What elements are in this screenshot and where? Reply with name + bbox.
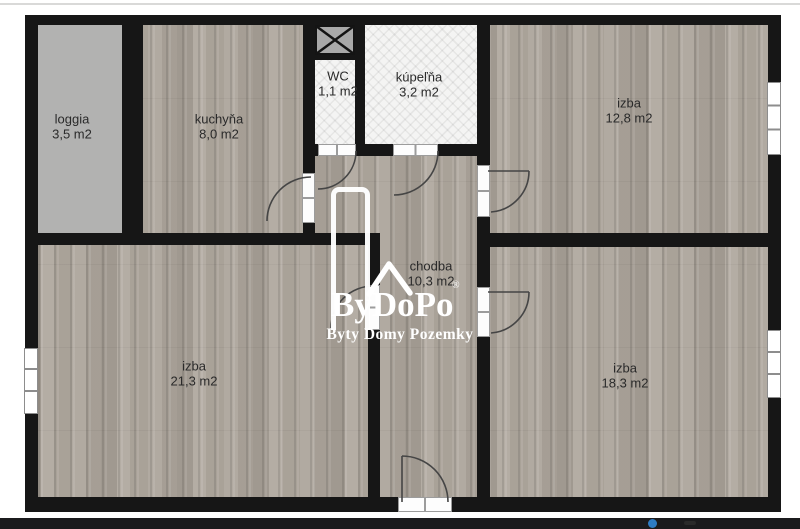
wall-chodba-izba-right-a <box>477 15 490 165</box>
room-name: chodba <box>408 259 455 274</box>
door-izba-bottom-right <box>477 287 490 337</box>
wall-shaft-bottom <box>315 55 355 60</box>
wall-mid-left <box>25 233 380 245</box>
cutoff-text-fragment <box>684 521 696 525</box>
blue-dot <box>648 519 657 528</box>
wall-chodba-izba-left-b <box>368 330 380 497</box>
room-area: 18,3 m2 <box>602 376 649 391</box>
room-label-wc: WC 1,1 m2 <box>318 69 358 100</box>
registered-trademark-icon: ® <box>452 281 460 291</box>
wall-mid-right <box>477 233 781 247</box>
wall-chodba-izba-right-b <box>477 217 490 287</box>
window-izba-bottom-right <box>767 330 781 398</box>
door-kitchen <box>302 173 315 223</box>
room-name: kuchyňa <box>195 112 243 127</box>
room-name: loggia <box>52 112 92 127</box>
room-name: izba <box>602 361 649 376</box>
room-name: izba <box>171 359 218 374</box>
window-izba-top-right <box>767 82 781 155</box>
room-area: 8,0 m2 <box>195 127 243 142</box>
wall-loggia-kitchen <box>122 15 143 245</box>
wall-kitchen-chodba-lower <box>303 223 315 245</box>
door-wc <box>318 144 356 156</box>
watermark-tagline: Byty Domy Pozemky <box>326 327 473 343</box>
room-name: kúpeľňa <box>396 70 442 85</box>
room-label-izba-bottom-right: izba 18,3 m2 <box>602 361 649 392</box>
door-izba-top-right <box>477 165 490 217</box>
room-area: 3,5 m2 <box>52 127 92 142</box>
ventilation-shaft <box>315 25 355 55</box>
wall-under-wc-left <box>303 144 318 156</box>
room-area: 3,2 m2 <box>396 85 442 100</box>
scan-artifact-line <box>0 3 800 5</box>
room-label-loggia: loggia 3,5 m2 <box>52 112 92 143</box>
room-area: 21,3 m2 <box>171 374 218 389</box>
room-area: 1,1 m2 <box>318 84 358 99</box>
room-name: WC <box>318 69 358 84</box>
watermark-brand: ByDoPo <box>331 287 454 322</box>
door-entrance <box>398 497 452 512</box>
room-label-izba-top-right: izba 12,8 m2 <box>606 96 653 127</box>
room-label-kuchyna: kuchyňa 8,0 m2 <box>195 112 243 143</box>
door-kupelna <box>393 144 438 156</box>
room-label-kupelna: kúpeľňa 3,2 m2 <box>396 70 442 101</box>
floor-plan-screenshot: loggia 3,5 m2 kuchyňa 8,0 m2 WC 1,1 m2 k… <box>0 0 800 529</box>
wall-under-wc-right <box>356 144 393 156</box>
room-area: 12,8 m2 <box>606 111 653 126</box>
bottom-cutoff-bar <box>0 518 800 529</box>
room-label-izba-bottom-left: izba 21,3 m2 <box>171 359 218 390</box>
window-izba-bottom-left <box>24 348 38 414</box>
wall-outer-left <box>25 15 38 512</box>
wall-chodba-izba-right-c <box>477 337 490 497</box>
room-name: izba <box>606 96 653 111</box>
